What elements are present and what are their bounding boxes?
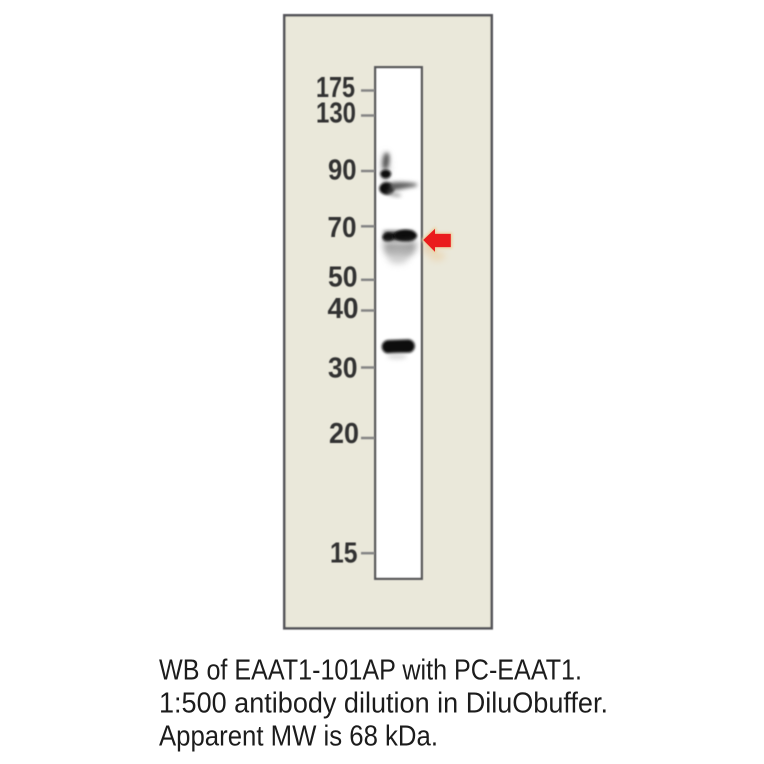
svg-text:30: 30 <box>328 352 358 384</box>
svg-text:70: 70 <box>328 212 357 244</box>
svg-text:15: 15 <box>330 537 358 569</box>
svg-text:50: 50 <box>328 261 358 293</box>
svg-text:130: 130 <box>316 98 356 130</box>
svg-text:1:500 antibody dilution in Dil: 1:500 antibody dilution in DiluObuffer. <box>159 688 608 720</box>
svg-text:Apparent MW is 68 kDa.: Apparent MW is 68 kDa. <box>159 721 438 753</box>
svg-text:WB of EAAT1-101AP with PC-EAAT: WB of EAAT1-101AP with PC-EAAT1. <box>159 655 582 687</box>
svg-text:90: 90 <box>328 154 357 186</box>
svg-text:20: 20 <box>329 418 359 450</box>
svg-text:40: 40 <box>328 293 359 325</box>
